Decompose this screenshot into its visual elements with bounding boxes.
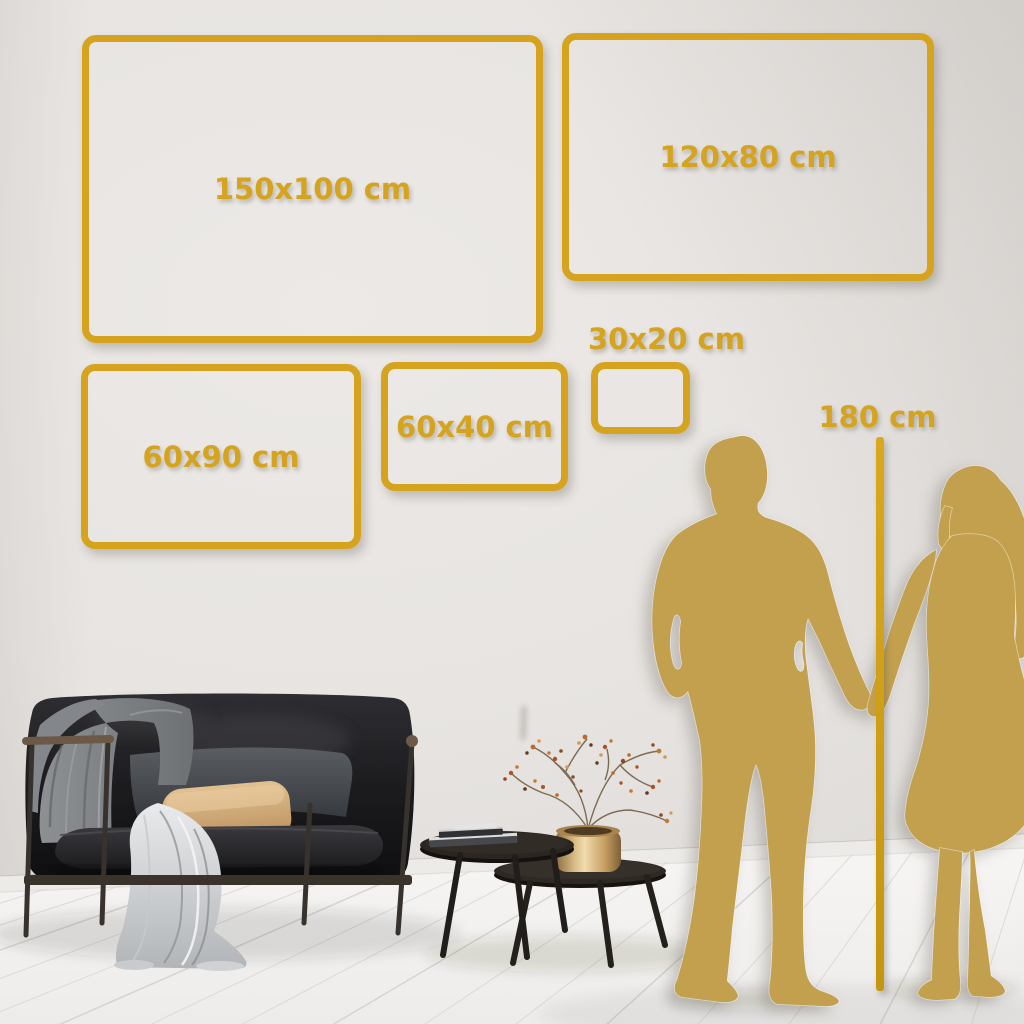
couple-silhouette [640, 410, 1024, 1024]
woman-silhouette [867, 466, 1024, 1000]
man-silhouette [652, 436, 871, 1006]
size-label-60x40: 60x40 cm [396, 410, 553, 444]
size-guide-scene: 150x100 cm 120x80 cm 60x90 cm 60x40 cm 3… [0, 0, 1024, 1024]
sofa [10, 685, 450, 980]
size-label-30x20: 30x20 cm [588, 322, 788, 356]
tall-table [420, 831, 574, 957]
sofa-rail [24, 875, 412, 885]
size-label-150x100: 150x100 cm [214, 172, 411, 206]
size-frame-150x100: 150x100 cm [82, 35, 543, 343]
size-label-120x80: 120x80 cm [659, 140, 836, 174]
size-label-60x90: 60x90 cm [143, 440, 300, 474]
height-measure-line [876, 437, 884, 991]
armrest-dowel [26, 739, 110, 741]
size-frame-60x40: 60x40 cm [381, 362, 568, 491]
size-frame-60x90: 60x90 cm [81, 364, 361, 549]
size-frame-120x80: 120x80 cm [562, 33, 934, 281]
